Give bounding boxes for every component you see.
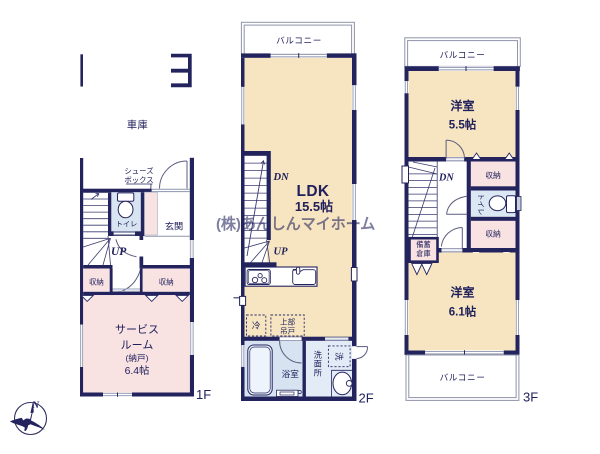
svg-text:冷: 冷 — [252, 320, 261, 331]
svg-text:2F: 2F — [359, 391, 374, 406]
svg-text:倉庫: 倉庫 — [416, 249, 430, 258]
svg-text:(納戸): (納戸) — [126, 352, 149, 363]
svg-text:サービス: サービス — [115, 323, 159, 336]
svg-text:所: 所 — [314, 368, 322, 378]
svg-text:バルコニー: バルコニー — [440, 50, 486, 60]
svg-text:3F: 3F — [523, 390, 538, 405]
svg-text:洗: 洗 — [334, 352, 344, 361]
svg-text:UP: UP — [111, 246, 127, 258]
svg-text:洋室: 洋室 — [450, 98, 474, 113]
svg-text:収納: 収納 — [485, 228, 501, 238]
svg-text:6.1帖: 6.1帖 — [449, 304, 477, 318]
svg-text:車庫: 車庫 — [127, 119, 148, 132]
svg-text:15.5帖: 15.5帖 — [295, 199, 333, 214]
svg-text:備蓄: 備蓄 — [416, 240, 430, 249]
svg-text:洗: 洗 — [314, 350, 322, 360]
svg-text:バルコニー: バルコニー — [440, 372, 486, 382]
svg-text:6.4帖: 6.4帖 — [125, 364, 150, 377]
svg-text:DN: DN — [438, 173, 454, 184]
svg-text:トイレ: トイレ — [116, 219, 138, 228]
svg-text:洋室: 洋室 — [450, 284, 474, 299]
svg-text:5.5帖: 5.5帖 — [449, 117, 477, 131]
svg-text:バルコニー: バルコニー — [276, 35, 322, 45]
svg-text:LDK: LDK — [296, 183, 329, 200]
svg-text:上部: 上部 — [280, 316, 296, 326]
svg-text:1F: 1F — [196, 387, 211, 402]
svg-text:収納: 収納 — [159, 278, 174, 287]
svg-text:収納: 収納 — [485, 170, 501, 180]
svg-text:トイレ: トイレ — [476, 193, 485, 215]
svg-text:ボックス: ボックス — [124, 175, 153, 184]
svg-text:浴室: 浴室 — [282, 368, 300, 379]
svg-text:玄関: 玄関 — [165, 221, 183, 232]
svg-text:収納: 収納 — [89, 278, 104, 287]
svg-text:(株)あんしんマイホーム: (株)あんしんマイホーム — [216, 215, 375, 233]
svg-text:UP: UP — [274, 247, 289, 258]
svg-text:面: 面 — [314, 360, 322, 369]
svg-text:ルーム: ルーム — [121, 339, 154, 352]
svg-text:シューズ: シューズ — [124, 167, 154, 176]
svg-text:吊戸: 吊戸 — [280, 327, 296, 336]
svg-text:DN: DN — [273, 172, 290, 183]
